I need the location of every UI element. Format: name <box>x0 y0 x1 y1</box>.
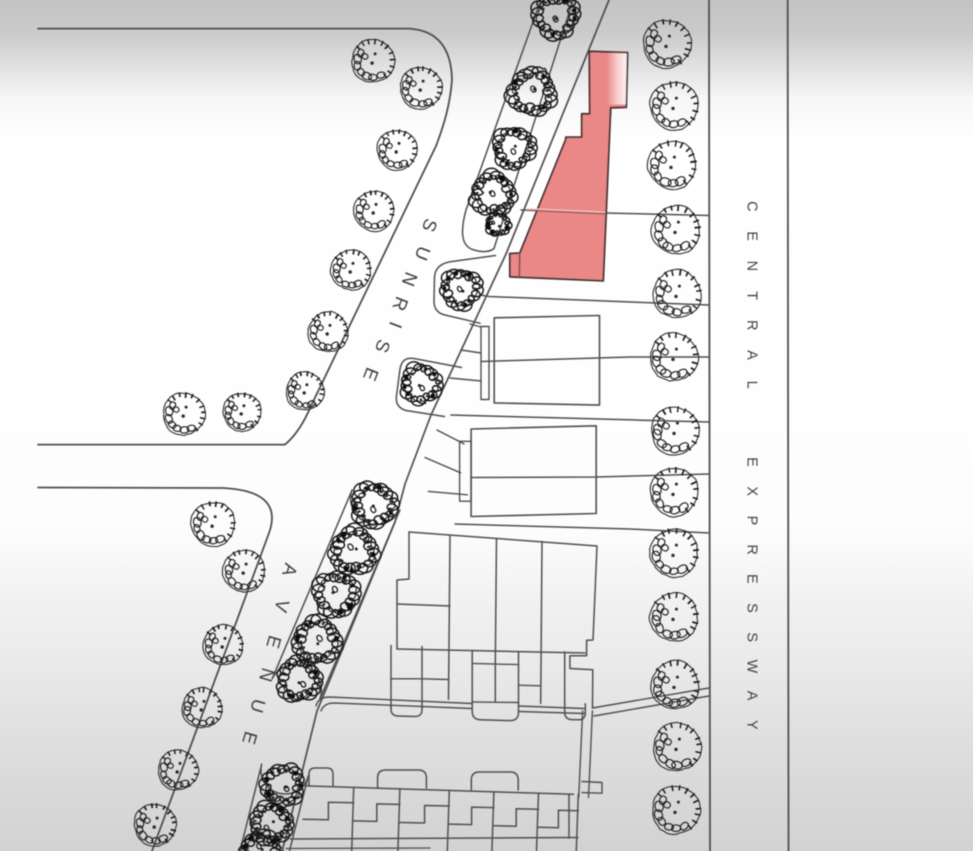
svg-text:N: N <box>743 261 759 271</box>
svg-text:E: E <box>743 457 759 467</box>
svg-text:T: T <box>743 291 759 300</box>
svg-text:W: W <box>743 660 759 674</box>
svg-text:S: S <box>743 632 759 642</box>
svg-text:Y: Y <box>743 720 759 730</box>
svg-text:P: P <box>743 516 759 526</box>
svg-text:X: X <box>743 486 759 496</box>
svg-text:A: A <box>743 350 759 360</box>
svg-text:R: R <box>743 544 759 554</box>
svg-text:L: L <box>743 381 759 389</box>
svg-text:C: C <box>743 201 759 211</box>
svg-text:A: A <box>743 691 759 701</box>
svg-text:R: R <box>743 320 759 330</box>
svg-text:E: E <box>743 574 759 584</box>
svg-text:S: S <box>743 603 759 613</box>
svg-text:E: E <box>743 231 759 241</box>
